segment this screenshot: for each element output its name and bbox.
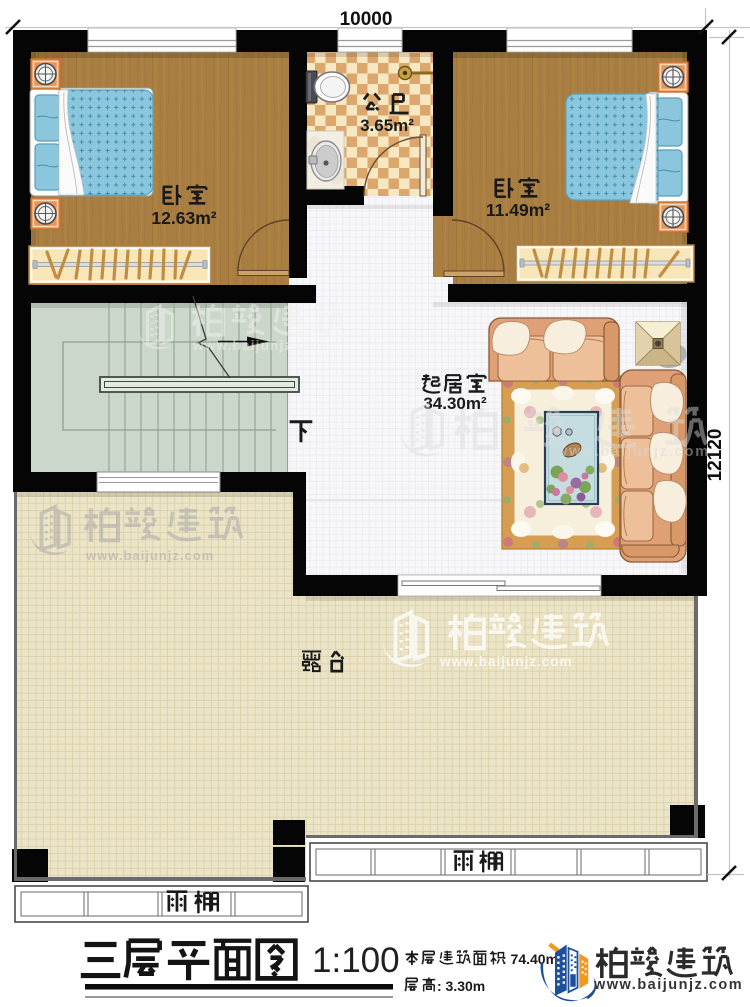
svg-text:www.baijunjz.com: www.baijunjz.com bbox=[439, 654, 573, 669]
svg-text:3.65m²: 3.65m² bbox=[360, 116, 414, 135]
svg-text:: 3.30m: : 3.30m bbox=[437, 978, 485, 994]
svg-text:: 74.40m²: : 74.40m² bbox=[502, 951, 563, 967]
svg-text:www.baijunjz.com: www.baijunjz.com bbox=[593, 977, 743, 993]
svg-text:10000: 10000 bbox=[340, 9, 393, 30]
svg-text:12.63m²: 12.63m² bbox=[151, 208, 216, 228]
svg-text:11.49m²: 11.49m² bbox=[486, 200, 550, 220]
svg-text:www.baijunjz.com: www.baijunjz.com bbox=[555, 444, 710, 460]
svg-text:1:100: 1:100 bbox=[312, 941, 400, 980]
svg-text:www.baijunjz.com: www.baijunjz.com bbox=[192, 338, 329, 353]
svg-text:www.baijunjz.com: www.baijunjz.com bbox=[85, 548, 214, 563]
